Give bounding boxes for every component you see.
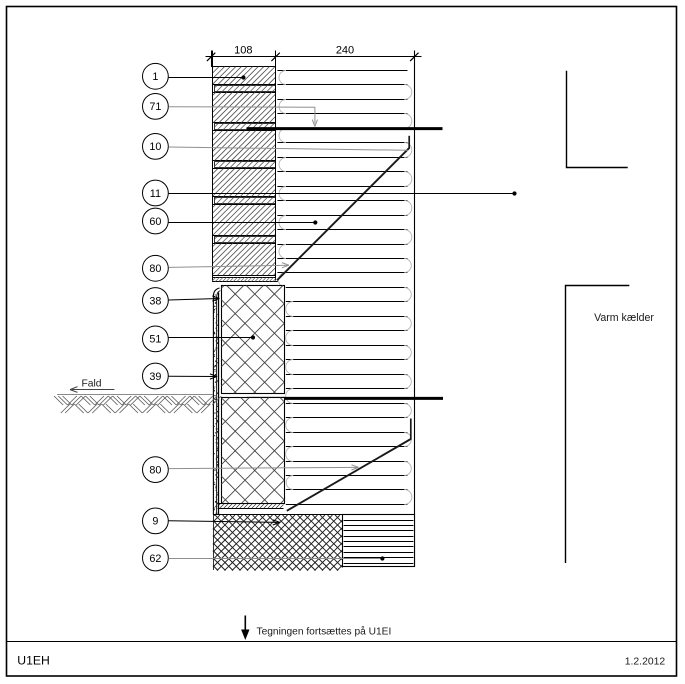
svg-text:U1EH: U1EH [17, 653, 50, 667]
svg-text:71: 71 [149, 101, 161, 113]
svg-text:80: 80 [149, 263, 161, 275]
svg-text:108: 108 [234, 45, 252, 57]
svg-text:1: 1 [152, 71, 158, 83]
svg-text:240: 240 [336, 45, 354, 57]
svg-text:11: 11 [150, 188, 161, 200]
svg-text:62: 62 [149, 553, 161, 565]
svg-text:60: 60 [149, 216, 161, 228]
svg-text:Varm kælder: Varm kælder [594, 312, 654, 324]
svg-text:Tegningen fortsættes på U1EI: Tegningen fortsættes på U1EI [257, 625, 392, 637]
svg-text:10: 10 [149, 141, 161, 153]
svg-text:51: 51 [149, 334, 161, 346]
svg-text:38: 38 [149, 295, 161, 307]
svg-text:80: 80 [149, 464, 161, 476]
svg-text:Fald: Fald [81, 379, 101, 390]
svg-text:9: 9 [152, 516, 158, 528]
svg-text:1.2.2012: 1.2.2012 [625, 656, 666, 667]
svg-text:39: 39 [149, 371, 161, 383]
